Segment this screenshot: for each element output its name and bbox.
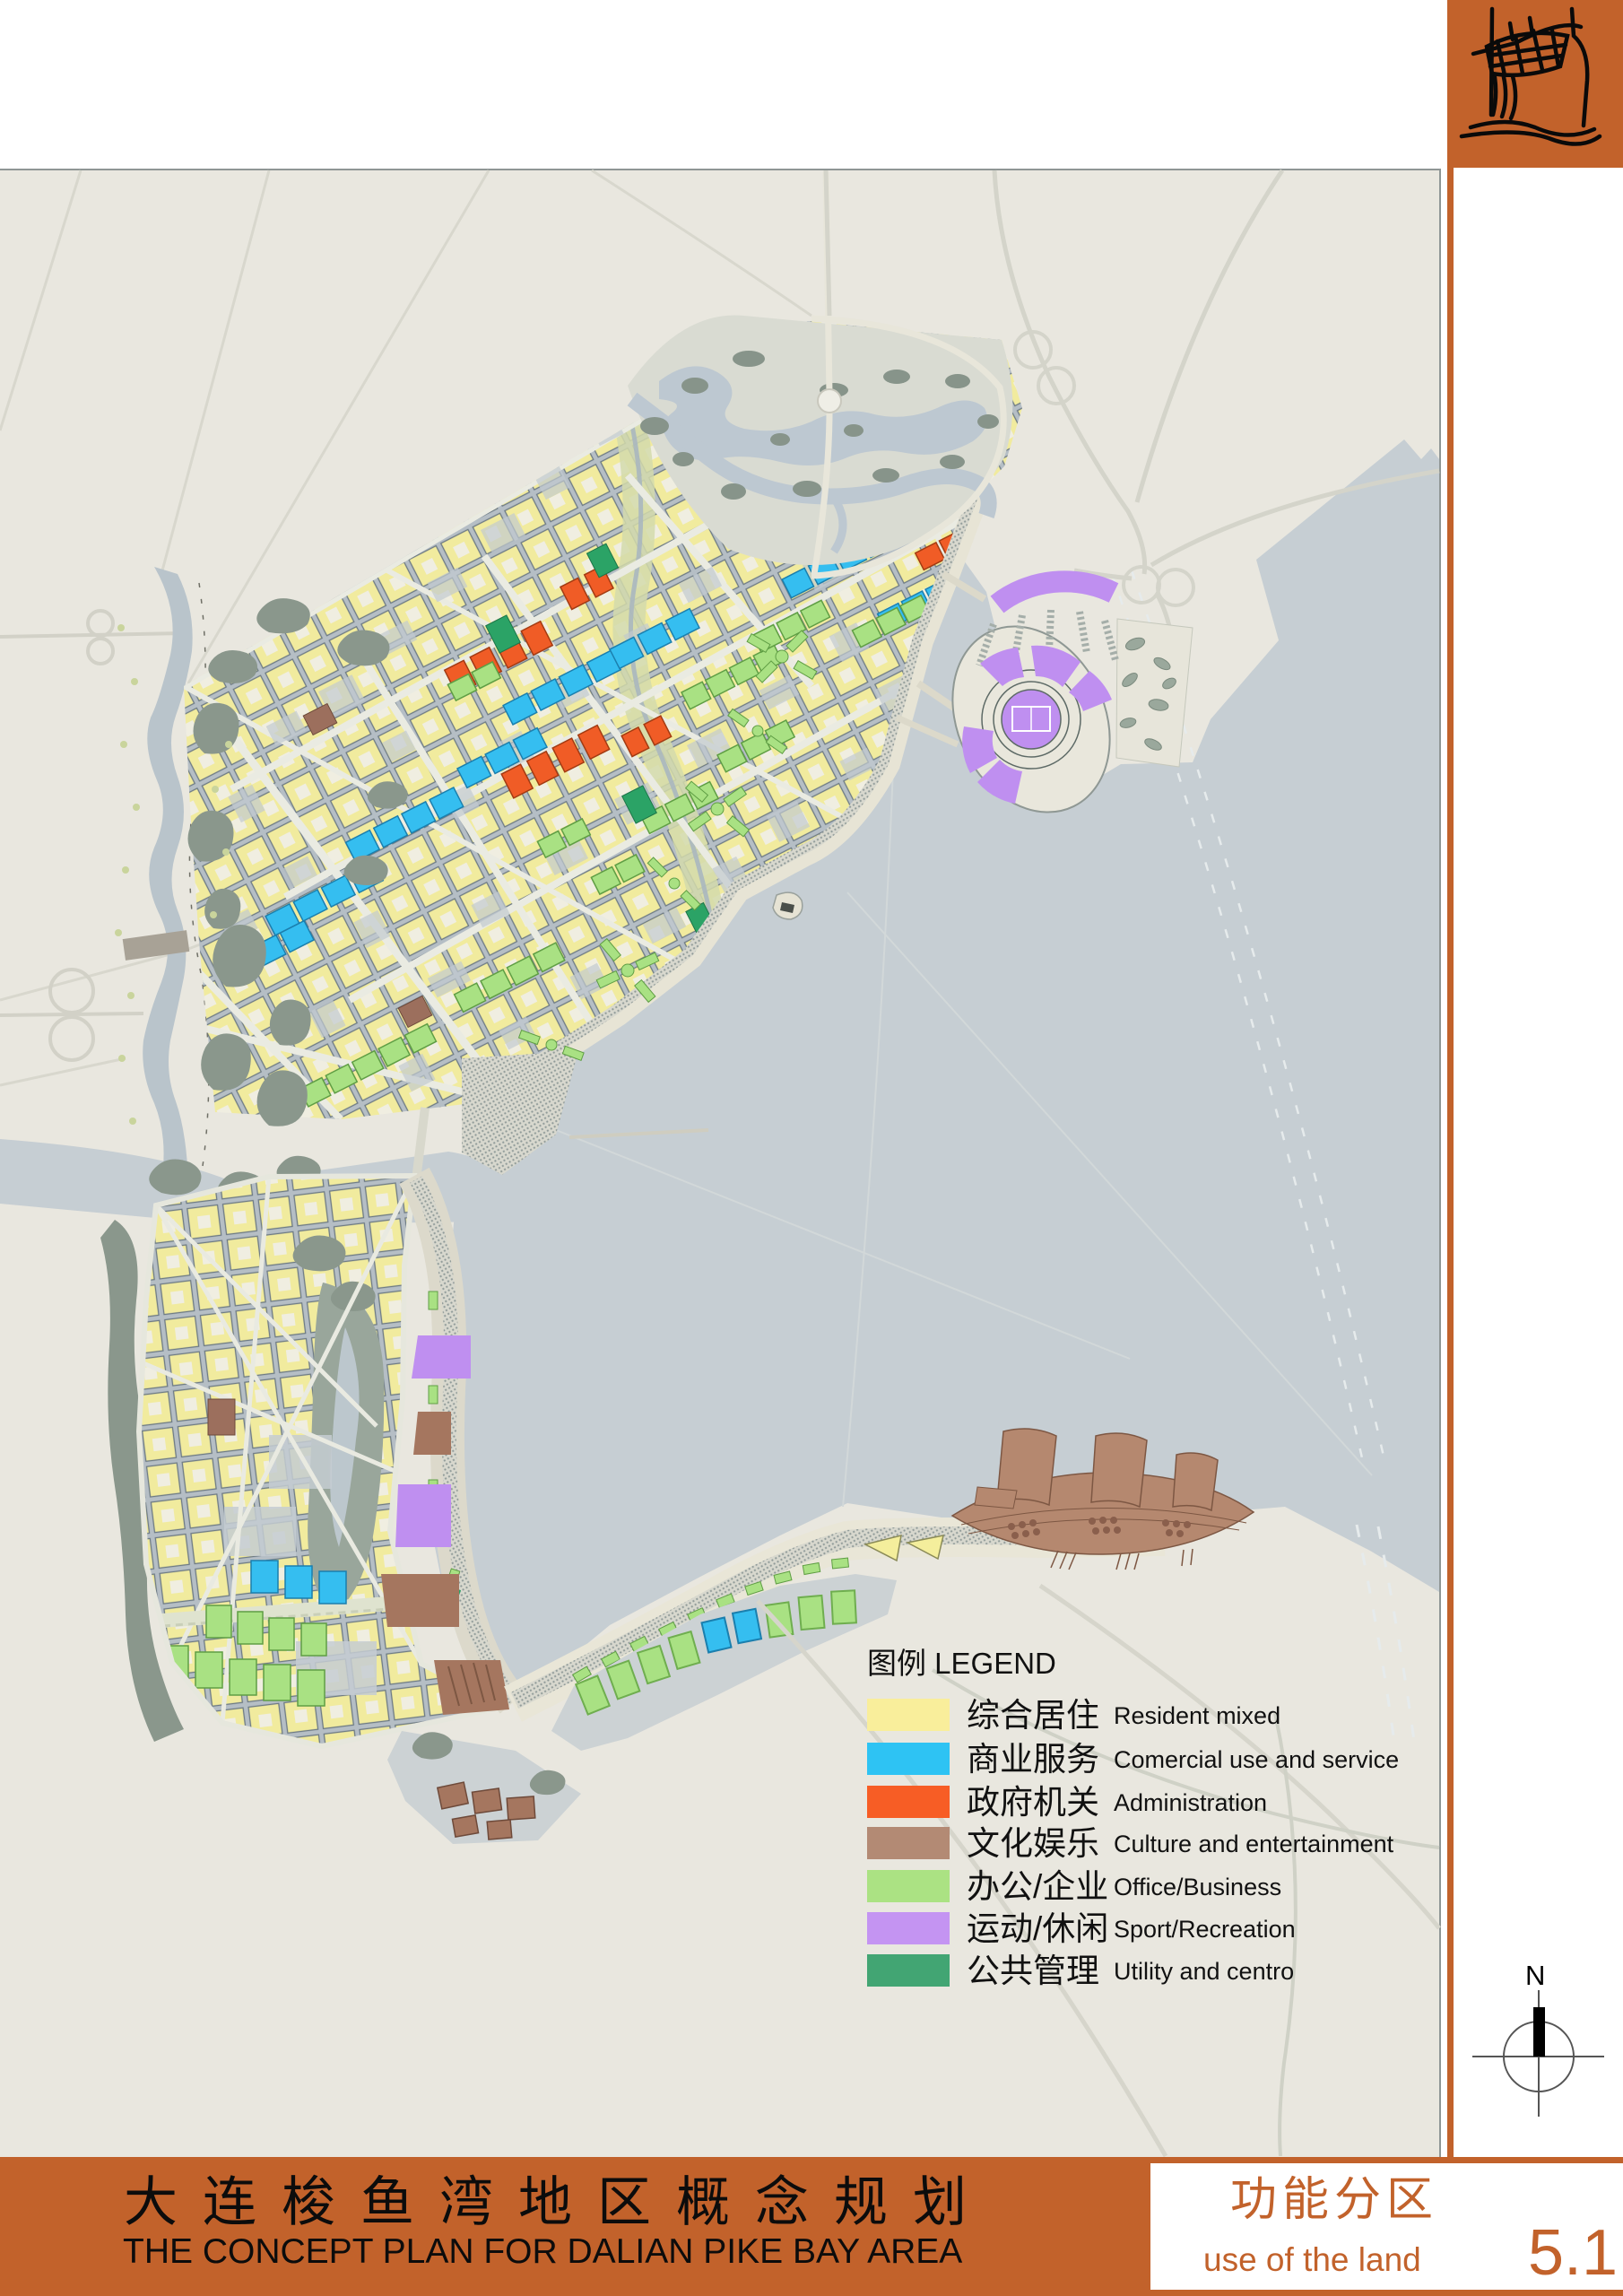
svg-text:大连梭鱼湾地区概念规划: 大连梭鱼湾地区概念规划 bbox=[124, 2172, 992, 2232]
svg-text:综合居住: 综合居住 bbox=[967, 1697, 1099, 1734]
svg-text:功能分区: 功能分区 bbox=[1230, 2174, 1438, 2226]
svg-text:Comercial use and service: Comercial use and service bbox=[1114, 1746, 1399, 1773]
svg-text:Utility and centro: Utility and centro bbox=[1114, 1958, 1294, 1985]
svg-text:办公/企业: 办公/企业 bbox=[967, 1868, 1108, 1905]
svg-text:Resident mixed: Resident mixed bbox=[1114, 1702, 1280, 1729]
svg-text:Office/Business: Office/Business bbox=[1114, 1874, 1281, 1900]
svg-text:Sport/Recreation: Sport/Recreation bbox=[1114, 1916, 1296, 1943]
svg-text:图例 LEGEND: 图例 LEGEND bbox=[867, 1647, 1056, 1680]
svg-text:use of the land: use of the land bbox=[1203, 2241, 1421, 2278]
svg-text:运动/休闲: 运动/休闲 bbox=[967, 1910, 1108, 1947]
svg-text:政府机关: 政府机关 bbox=[967, 1784, 1099, 1821]
svg-text:文化娱乐: 文化娱乐 bbox=[967, 1825, 1099, 1862]
svg-text:N: N bbox=[1525, 1960, 1545, 1991]
svg-text:Administration: Administration bbox=[1114, 1789, 1267, 1816]
svg-text:THE CONCEPT PLAN FOR DALIAN PI: THE CONCEPT PLAN FOR DALIAN PIKE BAY ARE… bbox=[123, 2232, 962, 2271]
svg-text:5.1: 5.1 bbox=[1528, 2217, 1618, 2289]
svg-text:公共管理: 公共管理 bbox=[967, 1952, 1099, 1989]
svg-text:Culture and entertainment: Culture and entertainment bbox=[1114, 1831, 1394, 1857]
svg-text:商业服务: 商业服务 bbox=[967, 1741, 1099, 1778]
